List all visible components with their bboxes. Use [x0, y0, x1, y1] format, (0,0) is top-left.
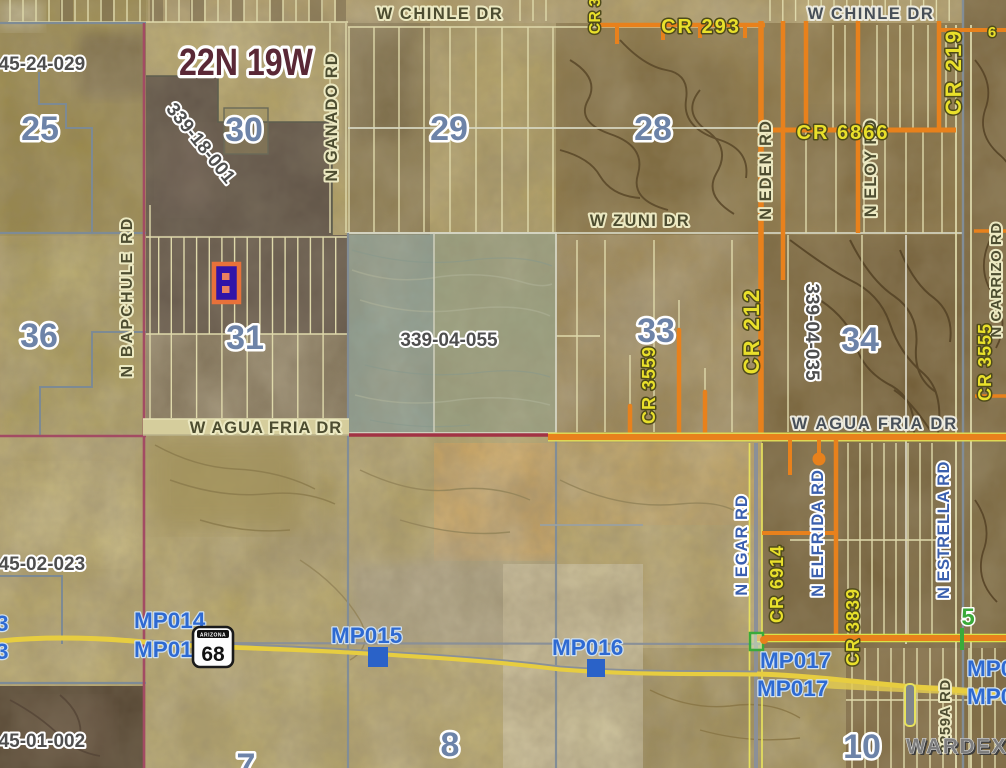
svg-text:345-02-023: 345-02-023	[0, 554, 85, 575]
svg-text:W CHINLE DR: W CHINLE DR	[377, 5, 504, 23]
svg-text:W AGUA FRIA DR: W AGUA FRIA DR	[190, 419, 342, 437]
svg-text:CR 219: CR 219	[941, 29, 966, 116]
svg-text:22N 19W: 22N 19W	[179, 42, 313, 84]
svg-text:33: 33	[637, 312, 675, 350]
svg-text:N ELFRIDA RD: N ELFRIDA RD	[809, 469, 827, 597]
svg-text:3: 3	[0, 611, 9, 636]
svg-text:N EDEN RD: N EDEN RD	[757, 120, 775, 220]
svg-text:CR 3839: CR 3839	[843, 588, 863, 666]
svg-text:28: 28	[634, 110, 672, 148]
svg-text:345-24-029: 345-24-029	[0, 54, 85, 75]
svg-text:34: 34	[841, 321, 879, 359]
svg-text:36: 36	[20, 317, 58, 355]
svg-text:MP017: MP017	[757, 676, 828, 701]
svg-text:68: 68	[201, 643, 225, 666]
svg-text:6: 6	[988, 24, 996, 41]
svg-text:MP01: MP01	[967, 656, 1006, 681]
svg-text:29: 29	[430, 110, 468, 148]
svg-text:W AGUA FRIA DR: W AGUA FRIA DR	[792, 415, 958, 433]
svg-text:WARDEX: WARDEX	[906, 735, 1006, 758]
svg-text:W ZUNI DR: W ZUNI DR	[590, 212, 691, 230]
svg-text:ARIZONA: ARIZONA	[200, 633, 226, 639]
svg-text:30: 30	[225, 111, 263, 149]
svg-text:N CARRIZO RD: N CARRIZO RD	[988, 222, 1005, 337]
svg-text:CR 212: CR 212	[739, 288, 764, 375]
svg-text:31: 31	[226, 319, 264, 357]
svg-text:N ESTRELLA RD: N ESTRELLA RD	[935, 461, 953, 599]
svg-text:10: 10	[843, 728, 881, 766]
svg-text:25: 25	[21, 110, 59, 148]
svg-text:N BAPCHULE RD: N BAPCHULE RD	[119, 216, 136, 377]
svg-text:CR 3: CR 3	[587, 0, 604, 34]
svg-text:CR 3559: CR 3559	[639, 346, 659, 424]
svg-text:N EGAR RD: N EGAR RD	[733, 494, 751, 596]
svg-text:339-04-035: 339-04-035	[801, 283, 822, 381]
svg-text:CR 6866: CR 6866	[797, 122, 890, 144]
svg-text:7: 7	[237, 747, 256, 768]
svg-text:CR 293: CR 293	[661, 16, 741, 38]
svg-text:CR 6914: CR 6914	[767, 545, 787, 623]
svg-text:CR 3555: CR 3555	[975, 323, 995, 401]
svg-text:W CHINLE DR: W CHINLE DR	[808, 5, 935, 23]
svg-text:N GANADO RD: N GANADO RD	[323, 52, 341, 181]
svg-text:339-04-055: 339-04-055	[400, 330, 498, 351]
svg-text:345-01-002: 345-01-002	[0, 731, 85, 752]
svg-text:8: 8	[441, 726, 460, 764]
svg-text:MP01: MP01	[967, 684, 1006, 709]
svg-text:MP015: MP015	[331, 623, 402, 648]
svg-text:MP017: MP017	[760, 648, 831, 673]
svg-text:5: 5	[961, 604, 974, 631]
svg-text:MP016: MP016	[552, 635, 623, 660]
svg-text:3: 3	[0, 639, 9, 664]
